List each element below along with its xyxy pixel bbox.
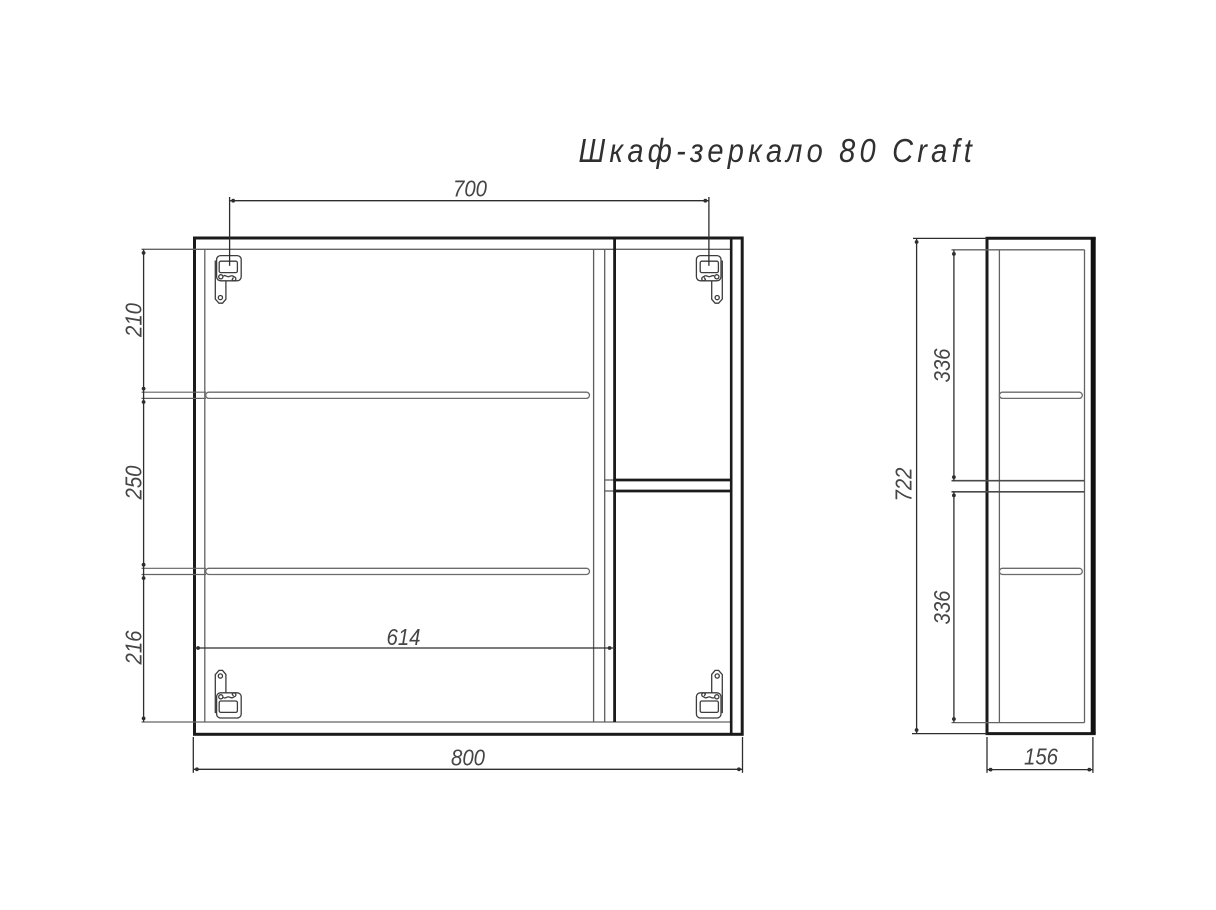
svg-text:614: 614 xyxy=(387,624,421,650)
svg-text:800: 800 xyxy=(451,745,485,771)
svg-text:336: 336 xyxy=(929,590,955,624)
svg-text:156: 156 xyxy=(1024,744,1058,770)
svg-text:336: 336 xyxy=(929,348,955,382)
svg-text:210: 210 xyxy=(121,303,147,338)
svg-text:700: 700 xyxy=(453,176,487,202)
svg-text:722: 722 xyxy=(891,467,917,501)
svg-text:216: 216 xyxy=(121,630,147,665)
svg-text:250: 250 xyxy=(121,465,147,500)
svg-text:Шкаф-зеркало 80 Craft: Шкаф-зеркало 80 Craft xyxy=(579,132,974,169)
